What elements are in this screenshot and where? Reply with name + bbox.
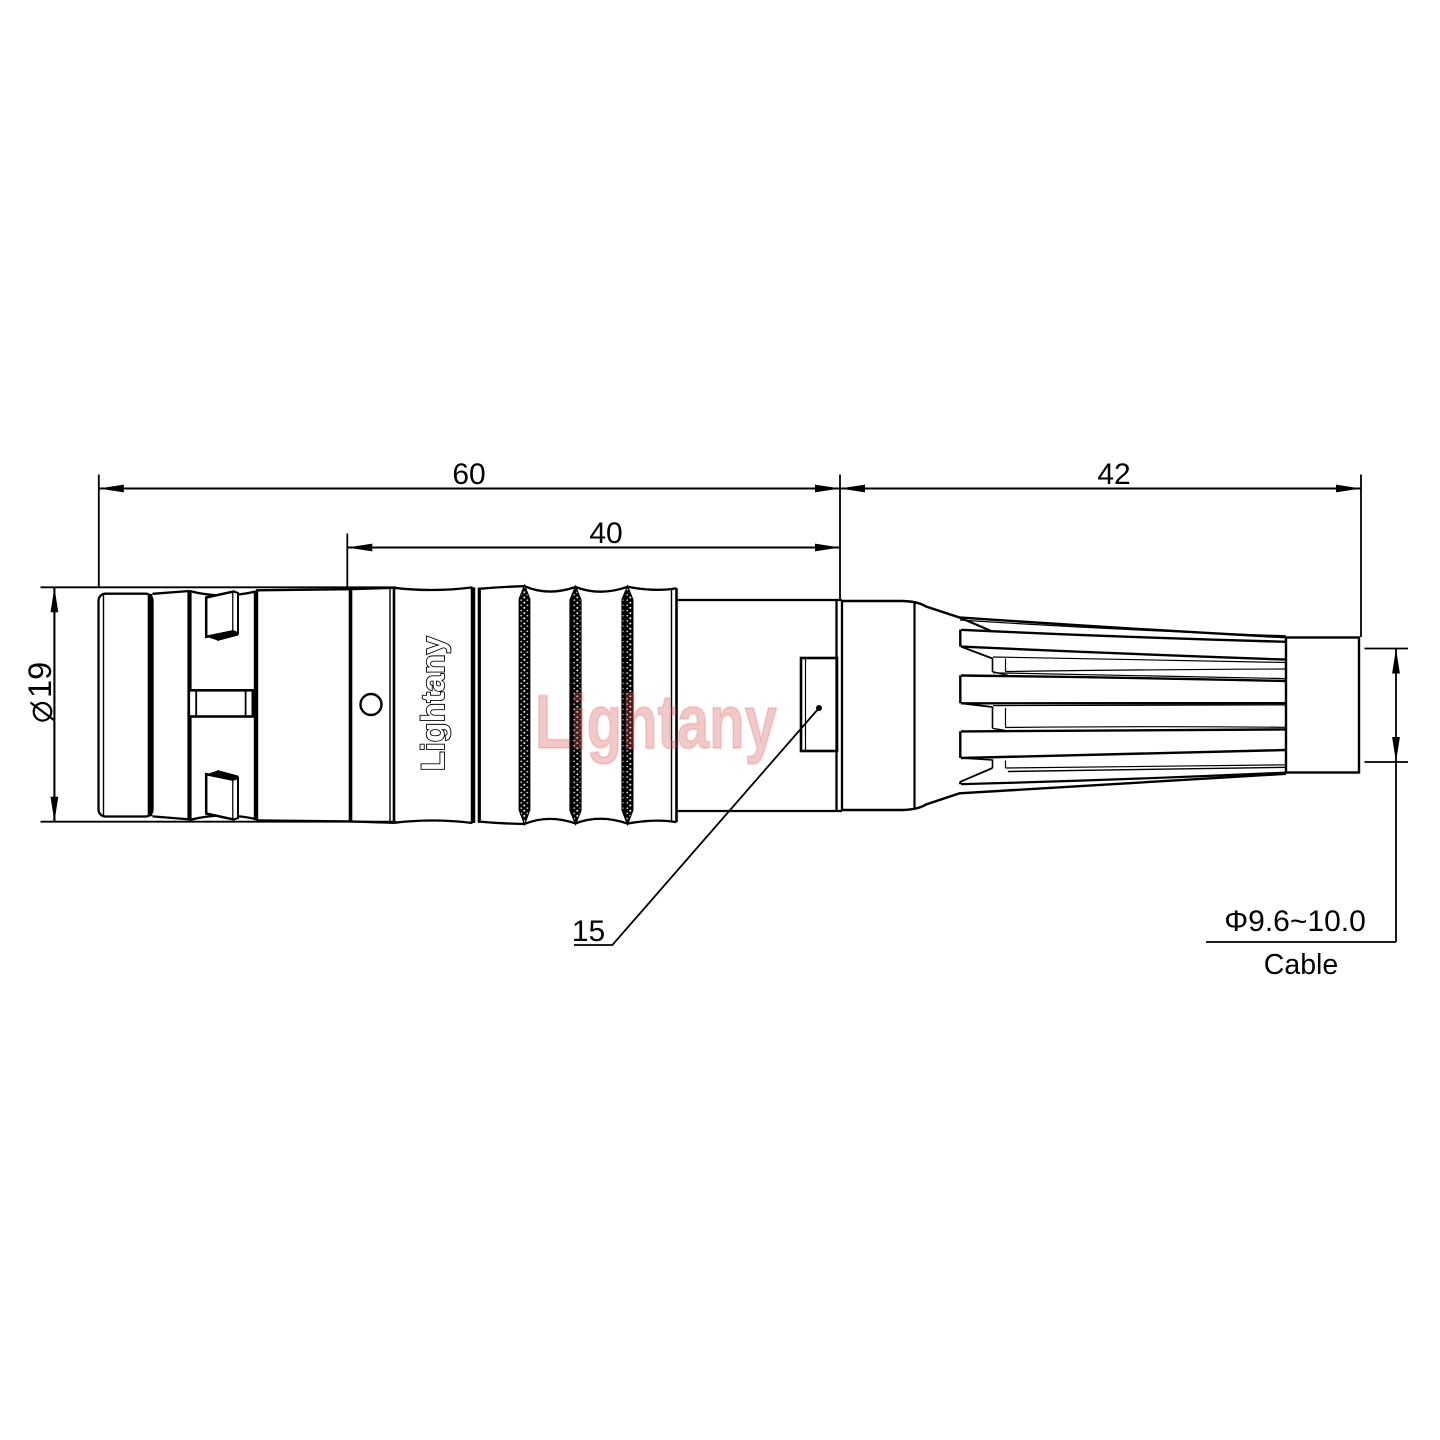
svg-text:40: 40 [589,517,622,550]
svg-text:Φ9.6~10.0: Φ9.6~10.0 [1224,905,1366,938]
svg-text:42: 42 [1097,458,1130,491]
svg-text:Cable: Cable [1264,949,1338,981]
svg-text:60: 60 [452,458,485,491]
svg-text:Lightany: Lightany [535,681,777,765]
svg-text:15: 15 [572,915,605,948]
svg-text:19: 19 [22,662,58,698]
svg-text:Lightany: Lightany [415,636,451,771]
